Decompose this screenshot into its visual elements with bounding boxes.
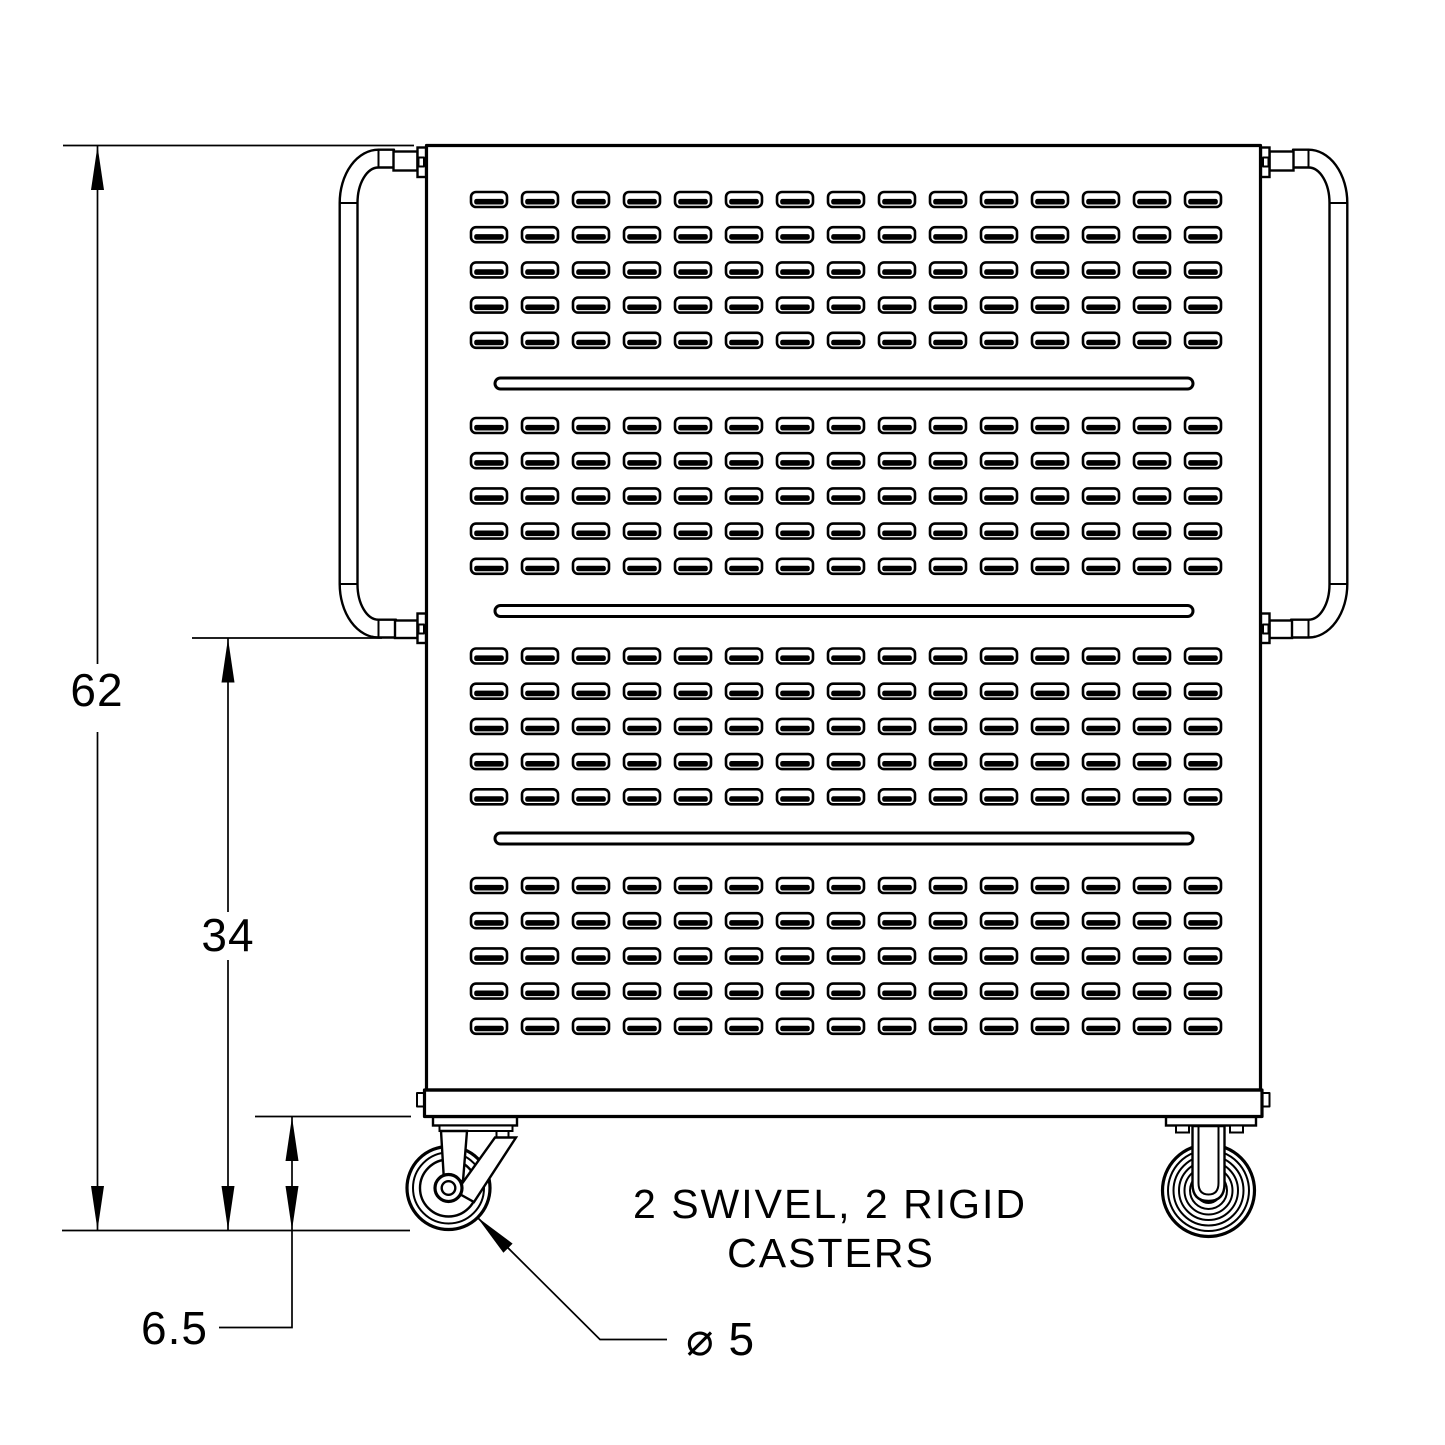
louver-slot bbox=[777, 559, 813, 574]
louver-slot bbox=[522, 649, 558, 664]
louver-slot bbox=[726, 418, 762, 433]
louver-slot bbox=[573, 719, 609, 734]
louver-slot bbox=[1032, 684, 1068, 699]
louver-slot bbox=[675, 878, 711, 893]
louver-slot bbox=[471, 719, 507, 734]
louver-slot bbox=[1185, 754, 1221, 769]
louver-slot bbox=[471, 453, 507, 468]
louver-slot bbox=[879, 488, 915, 503]
louver-slot bbox=[1083, 649, 1119, 664]
louver-slot bbox=[522, 227, 558, 242]
louver-slot bbox=[675, 559, 711, 574]
louver-slot bbox=[981, 192, 1017, 207]
caster-mount-plate bbox=[1166, 1117, 1256, 1126]
louver-slot bbox=[1134, 453, 1170, 468]
louver-slot bbox=[522, 333, 558, 348]
louver-slot bbox=[981, 719, 1017, 734]
louver-slot bbox=[675, 948, 711, 963]
louver-slot bbox=[1185, 524, 1221, 539]
louver-slot bbox=[828, 298, 864, 313]
louver-slot bbox=[828, 559, 864, 574]
right-handle bbox=[1261, 148, 1347, 644]
louver-slot bbox=[930, 649, 966, 664]
louver-slot bbox=[777, 754, 813, 769]
louver-slot bbox=[471, 262, 507, 277]
dimension-caster-height: 6.5 bbox=[141, 1117, 411, 1355]
louver-slot bbox=[573, 878, 609, 893]
note-line-2: CASTERS bbox=[727, 1230, 935, 1276]
louver-slot bbox=[471, 418, 507, 433]
louver-slot bbox=[624, 262, 660, 277]
louver-slot bbox=[981, 649, 1017, 664]
louver-slot bbox=[471, 913, 507, 928]
louver-slot bbox=[981, 559, 1017, 574]
louver-slot bbox=[828, 649, 864, 664]
louver-slot bbox=[777, 984, 813, 999]
louver-slot bbox=[522, 298, 558, 313]
louver-slot bbox=[522, 789, 558, 804]
wheel-axle bbox=[442, 1181, 456, 1195]
louver-slot bbox=[777, 789, 813, 804]
louver-slot bbox=[573, 524, 609, 539]
louver-slot bbox=[675, 453, 711, 468]
louver-slot bbox=[981, 913, 1017, 928]
louver-slot bbox=[726, 754, 762, 769]
arrowhead-down bbox=[286, 1186, 299, 1230]
caster-note: 2 SWIVEL, 2 RIGID CASTERS bbox=[633, 1181, 1027, 1276]
swivel-caster bbox=[407, 1117, 517, 1230]
louver-slot bbox=[930, 453, 966, 468]
handle-tube-outer bbox=[1291, 150, 1347, 638]
louver-slot bbox=[1083, 913, 1119, 928]
louver-slot bbox=[1185, 878, 1221, 893]
louver-slot bbox=[930, 948, 966, 963]
louver-slot bbox=[1134, 649, 1170, 664]
louver-slot bbox=[471, 559, 507, 574]
louver-slot bbox=[726, 649, 762, 664]
louver-slot bbox=[1134, 418, 1170, 433]
louver-slot bbox=[777, 298, 813, 313]
louver-slot bbox=[930, 754, 966, 769]
louver-slot bbox=[879, 1019, 915, 1034]
louver-slot bbox=[1032, 754, 1068, 769]
louver-slot bbox=[828, 948, 864, 963]
louver-slot bbox=[981, 1019, 1017, 1034]
louver-slot bbox=[879, 719, 915, 734]
louver-slot bbox=[828, 418, 864, 433]
louver-slot bbox=[828, 1019, 864, 1034]
arrowhead-up bbox=[222, 639, 235, 683]
louver-slot bbox=[828, 488, 864, 503]
louver-slot bbox=[1185, 913, 1221, 928]
louver-slot bbox=[726, 298, 762, 313]
louver-slot bbox=[981, 418, 1017, 433]
louver-slot bbox=[471, 192, 507, 207]
louver-slot bbox=[1083, 418, 1119, 433]
dim-label-62: 62 bbox=[70, 664, 123, 716]
louver-slot bbox=[930, 559, 966, 574]
louver-slot bbox=[777, 948, 813, 963]
louver-slot bbox=[828, 754, 864, 769]
louver-slot bbox=[624, 418, 660, 433]
louver-slot bbox=[624, 192, 660, 207]
louver-slot bbox=[726, 684, 762, 699]
louver-slot bbox=[1134, 488, 1170, 503]
louver-slot bbox=[471, 488, 507, 503]
louver-slot bbox=[777, 913, 813, 928]
louver-slot bbox=[777, 453, 813, 468]
louver-slot bbox=[573, 559, 609, 574]
louver-slot bbox=[879, 649, 915, 664]
louver-slot bbox=[1083, 789, 1119, 804]
louver-slot bbox=[1032, 418, 1068, 433]
louver-slot bbox=[624, 333, 660, 348]
louver-slot bbox=[1083, 227, 1119, 242]
louver-slot bbox=[930, 789, 966, 804]
louver-slot bbox=[981, 524, 1017, 539]
louver-slot bbox=[573, 298, 609, 313]
louver-slot bbox=[930, 719, 966, 734]
note-line-1: 2 SWIVEL, 2 RIGID bbox=[633, 1181, 1027, 1227]
louver-slot bbox=[879, 227, 915, 242]
louver-slot bbox=[1134, 684, 1170, 699]
louver-slot bbox=[726, 333, 762, 348]
louver-slot bbox=[981, 227, 1017, 242]
louver-slot bbox=[624, 453, 660, 468]
louver-slot bbox=[930, 488, 966, 503]
louver-slot bbox=[981, 333, 1017, 348]
louver-slot bbox=[573, 754, 609, 769]
leader-line bbox=[478, 1218, 667, 1340]
louver-slot bbox=[624, 913, 660, 928]
louver-slot bbox=[675, 649, 711, 664]
louver-slot bbox=[879, 453, 915, 468]
louver-slot bbox=[573, 984, 609, 999]
tube-joint-lines bbox=[1309, 150, 1348, 638]
louver-slot bbox=[981, 984, 1017, 999]
louver-slot bbox=[1134, 913, 1170, 928]
louver-slot bbox=[471, 524, 507, 539]
louver-slot bbox=[522, 262, 558, 277]
left-handle bbox=[340, 148, 426, 644]
louver-slot bbox=[981, 298, 1017, 313]
louver-slot bbox=[726, 453, 762, 468]
louver-slot bbox=[879, 298, 915, 313]
louver-slot bbox=[828, 333, 864, 348]
louver-slot bbox=[828, 227, 864, 242]
louver-slot bbox=[624, 298, 660, 313]
louver-slot bbox=[726, 559, 762, 574]
louver-slot bbox=[828, 684, 864, 699]
louver-slot bbox=[879, 754, 915, 769]
louver-slot bbox=[1134, 524, 1170, 539]
louver-slot bbox=[522, 684, 558, 699]
louver-slot bbox=[879, 192, 915, 207]
louver-slot bbox=[1185, 719, 1221, 734]
louver-slot bbox=[879, 333, 915, 348]
louver-slot bbox=[828, 878, 864, 893]
arrowhead-down bbox=[91, 1186, 104, 1230]
louver-slot bbox=[1185, 684, 1221, 699]
louver-slot bbox=[675, 298, 711, 313]
louver-slot bbox=[1185, 418, 1221, 433]
louver-slot bbox=[1185, 333, 1221, 348]
louver-slot bbox=[930, 262, 966, 277]
louver-slot bbox=[1032, 913, 1068, 928]
louver-slot bbox=[930, 333, 966, 348]
louver-slot bbox=[1083, 559, 1119, 574]
louver-slot bbox=[879, 684, 915, 699]
louver-slot bbox=[675, 227, 711, 242]
louver-slot bbox=[471, 333, 507, 348]
louver-slot bbox=[624, 948, 660, 963]
louver-slot bbox=[573, 262, 609, 277]
louver-slot bbox=[675, 984, 711, 999]
louver-slot bbox=[930, 298, 966, 313]
louver-slot bbox=[522, 488, 558, 503]
louver-slot bbox=[879, 878, 915, 893]
louver-slot bbox=[522, 878, 558, 893]
louver-slot bbox=[522, 1019, 558, 1034]
louver-slot bbox=[726, 488, 762, 503]
louver-slot bbox=[930, 984, 966, 999]
louver-slot bbox=[1083, 488, 1119, 503]
cart-front-elevation-drawing: 62 34 6.5 ⌀ 5 2 SWIVEL, 2 RIGID CASTERS bbox=[0, 0, 1445, 1445]
louver-slot bbox=[930, 192, 966, 207]
louver-slot bbox=[522, 453, 558, 468]
louver-slot bbox=[1083, 192, 1119, 207]
louver-slot bbox=[1032, 298, 1068, 313]
louver-slot bbox=[1032, 524, 1068, 539]
louver-slot bbox=[777, 262, 813, 277]
louver-slot bbox=[471, 1019, 507, 1034]
louver-slot bbox=[471, 948, 507, 963]
rigid-caster bbox=[1163, 1117, 1257, 1237]
louver-slot bbox=[1134, 1019, 1170, 1034]
louver-slot bbox=[1083, 1019, 1119, 1034]
louver-slot bbox=[471, 984, 507, 999]
louver-slot bbox=[1083, 754, 1119, 769]
louver-slot bbox=[624, 524, 660, 539]
louver-slot bbox=[573, 789, 609, 804]
handle-tube-inner bbox=[1291, 168, 1330, 620]
louver-slot bbox=[522, 418, 558, 433]
louver-slot bbox=[573, 418, 609, 433]
louver-slot bbox=[726, 1019, 762, 1034]
louver-slot bbox=[522, 192, 558, 207]
louver-slot bbox=[1083, 298, 1119, 313]
louver-slot bbox=[471, 227, 507, 242]
arrowhead-up bbox=[286, 1117, 299, 1161]
louver-slot bbox=[1185, 262, 1221, 277]
louver-slot bbox=[726, 789, 762, 804]
louver-slot bbox=[675, 524, 711, 539]
louver-slot bbox=[573, 453, 609, 468]
louver-slot bbox=[930, 913, 966, 928]
cart-panel bbox=[427, 146, 1261, 1091]
louver-slot bbox=[1083, 262, 1119, 277]
louver-slot bbox=[930, 878, 966, 893]
louver-slot bbox=[726, 878, 762, 893]
louver-slot bbox=[1032, 649, 1068, 664]
louver-slot bbox=[573, 1019, 609, 1034]
louver-slot bbox=[777, 524, 813, 539]
louver-slot bbox=[624, 1019, 660, 1034]
louver-slot bbox=[879, 984, 915, 999]
dim-label-34: 34 bbox=[201, 909, 254, 961]
louver-slot bbox=[675, 789, 711, 804]
louver-slot bbox=[1032, 559, 1068, 574]
louver-slot bbox=[1032, 488, 1068, 503]
louver-slot bbox=[675, 333, 711, 348]
louver-slot bbox=[726, 262, 762, 277]
louver-slot bbox=[930, 227, 966, 242]
louver-slot bbox=[624, 649, 660, 664]
louver-slot bbox=[1134, 984, 1170, 999]
louver-slot bbox=[777, 333, 813, 348]
rigid-fork-leg bbox=[1193, 1126, 1225, 1201]
louver-slot bbox=[675, 488, 711, 503]
louver-slot bbox=[1134, 298, 1170, 313]
louver-slot bbox=[828, 453, 864, 468]
dimension-overall-height: 62 bbox=[62, 146, 414, 1231]
louver-slot bbox=[777, 488, 813, 503]
louver-slot bbox=[879, 262, 915, 277]
louver-slot bbox=[1185, 488, 1221, 503]
louver-slot bbox=[675, 754, 711, 769]
louver-slot bbox=[1083, 719, 1119, 734]
arrowhead-up bbox=[91, 146, 104, 190]
louver-slot bbox=[1134, 559, 1170, 574]
louver-slot bbox=[471, 298, 507, 313]
louver-slot bbox=[573, 684, 609, 699]
louver-slot bbox=[675, 913, 711, 928]
caster-bolt bbox=[1176, 1126, 1189, 1133]
louver-slot bbox=[930, 524, 966, 539]
louver-slot bbox=[828, 262, 864, 277]
louver-slot bbox=[522, 984, 558, 999]
louver-slot bbox=[573, 488, 609, 503]
louver-slot bbox=[1134, 719, 1170, 734]
handle-top-bracket bbox=[1270, 152, 1294, 171]
louver-slot bbox=[1134, 878, 1170, 893]
louver-slot bbox=[879, 418, 915, 433]
handle-tube-outer bbox=[340, 150, 396, 638]
louver-slot bbox=[1185, 948, 1221, 963]
panel-groove bbox=[495, 606, 1193, 617]
louver-slot bbox=[1032, 789, 1068, 804]
louver-slot bbox=[930, 418, 966, 433]
louver-slot bbox=[1134, 192, 1170, 207]
drawing-canvas: 62 34 6.5 ⌀ 5 2 SWIVEL, 2 RIGID CASTERS bbox=[0, 0, 1445, 1445]
louver-slot bbox=[624, 719, 660, 734]
louver-slot bbox=[1083, 948, 1119, 963]
louver-slot bbox=[1185, 984, 1221, 999]
louver-slot bbox=[981, 754, 1017, 769]
handle-bottom-bracket bbox=[1270, 621, 1293, 639]
louver-slot bbox=[471, 789, 507, 804]
handle-bottom-bracket bbox=[395, 621, 418, 639]
louver-slot bbox=[1032, 984, 1068, 999]
louver-slot bbox=[624, 488, 660, 503]
caster-mount-plate bbox=[433, 1117, 517, 1126]
louver-slot bbox=[1134, 754, 1170, 769]
dimension-line-with-jog bbox=[219, 1117, 292, 1328]
tube-joint-lines bbox=[340, 150, 379, 638]
louver-slot bbox=[1032, 262, 1068, 277]
louver-slot bbox=[1032, 719, 1068, 734]
caster-bolt bbox=[1230, 1126, 1243, 1133]
louver-slot bbox=[675, 719, 711, 734]
dimension-handle-height: 34 bbox=[192, 638, 382, 1231]
louver-slot bbox=[879, 524, 915, 539]
louver-slot bbox=[981, 488, 1017, 503]
louver-slot bbox=[573, 948, 609, 963]
louver-slot bbox=[726, 524, 762, 539]
louver-slot bbox=[726, 913, 762, 928]
louver-slot bbox=[1185, 789, 1221, 804]
panel-groove bbox=[495, 833, 1193, 844]
louver-slot bbox=[522, 719, 558, 734]
louver-slot bbox=[1185, 192, 1221, 207]
louver-slot bbox=[981, 684, 1017, 699]
louver-slot bbox=[1185, 559, 1221, 574]
louver-slot bbox=[675, 192, 711, 207]
louver-slot bbox=[930, 684, 966, 699]
louver-slot bbox=[777, 227, 813, 242]
bottom-rail bbox=[417, 1090, 1270, 1117]
louver-slot bbox=[1032, 192, 1068, 207]
louver-slot bbox=[1185, 298, 1221, 313]
louver-slot bbox=[1134, 262, 1170, 277]
louver-slot bbox=[675, 262, 711, 277]
louver-slot bbox=[981, 453, 1017, 468]
louver-slot bbox=[573, 913, 609, 928]
leader-wheel-diameter: ⌀ 5 bbox=[477, 1217, 755, 1365]
arrowhead-leader bbox=[477, 1217, 513, 1253]
louver-slot bbox=[675, 684, 711, 699]
louver-slot bbox=[573, 649, 609, 664]
louver-slot bbox=[624, 789, 660, 804]
louver-slot bbox=[573, 227, 609, 242]
louver-slot bbox=[777, 719, 813, 734]
louver-slot bbox=[522, 524, 558, 539]
louver-slot bbox=[1032, 948, 1068, 963]
louver-slot bbox=[1032, 227, 1068, 242]
louver-slot bbox=[879, 559, 915, 574]
base-rail bbox=[425, 1090, 1263, 1117]
louver-slot bbox=[726, 719, 762, 734]
louver-slot bbox=[471, 754, 507, 769]
louver-slot bbox=[828, 984, 864, 999]
louver-slot bbox=[471, 878, 507, 893]
louver-slot bbox=[981, 789, 1017, 804]
louver-slot bbox=[1032, 333, 1068, 348]
louver-slot bbox=[828, 524, 864, 539]
louver-slot bbox=[1185, 1019, 1221, 1034]
louver-slot bbox=[624, 984, 660, 999]
louver-slot bbox=[1083, 524, 1119, 539]
louver-slot bbox=[777, 684, 813, 699]
dim-label-6-5: 6.5 bbox=[141, 1302, 208, 1354]
louver-slot bbox=[981, 948, 1017, 963]
louver-slot bbox=[522, 913, 558, 928]
louver-slot bbox=[624, 684, 660, 699]
louver-slot bbox=[1032, 1019, 1068, 1034]
louver-slot bbox=[675, 1019, 711, 1034]
louver-slot bbox=[1032, 878, 1068, 893]
louver-slot bbox=[930, 1019, 966, 1034]
